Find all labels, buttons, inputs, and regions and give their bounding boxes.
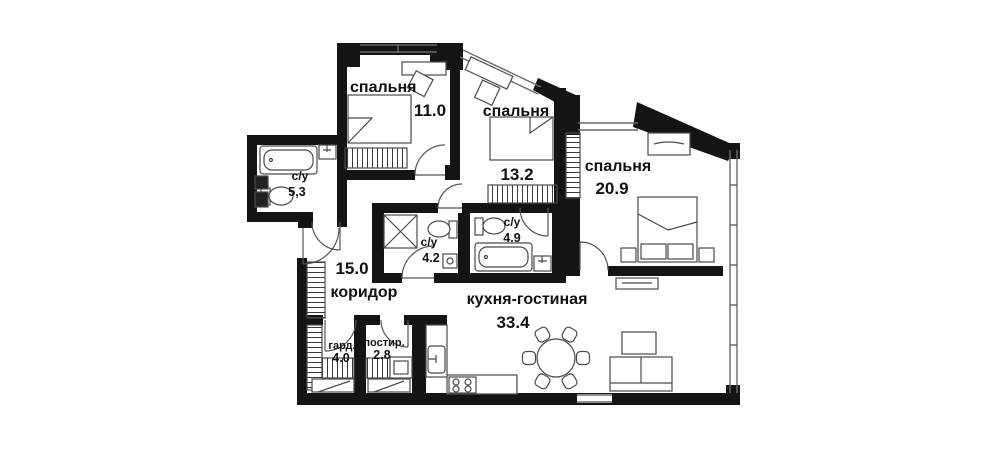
room-area: 2.8 <box>373 348 390 362</box>
room-area: 11.0 <box>414 101 446 120</box>
shaft <box>255 192 268 207</box>
bathtub-bathroom-3 <box>475 243 532 271</box>
room-label: с/у <box>421 235 438 249</box>
room-label: коридор <box>331 284 398 301</box>
washing-machine <box>390 357 412 378</box>
room-area: 15.0 <box>335 259 368 278</box>
wardrobe-strip-corridor <box>307 262 325 318</box>
wardrobe-strip-bedroom-2 <box>488 185 557 203</box>
stove <box>449 377 476 393</box>
coffee-table <box>622 332 656 354</box>
wardrobe-strip-bedroom-3 <box>566 133 580 198</box>
shaft <box>255 176 268 189</box>
room-area: 13.2 <box>500 165 533 184</box>
kitchen-sink <box>428 346 445 373</box>
room-area: 4.0 <box>332 351 349 365</box>
bench-laundry <box>368 379 410 392</box>
room-label: спальня <box>350 79 416 96</box>
bench-wardrobe <box>312 379 354 392</box>
shower-bathroom-2 <box>384 215 417 248</box>
bathtub-bathroom-1 <box>260 146 317 174</box>
room-area: 5,3 <box>288 185 305 199</box>
window-bottom <box>577 394 612 403</box>
room-label: с/у <box>504 215 521 229</box>
room-label: спальня <box>585 158 651 175</box>
toilet-bathroom-3 <box>475 218 505 235</box>
bed-single-bedroom-1 <box>348 95 411 143</box>
bed-single-bedroom-2 <box>490 117 553 160</box>
sink-bathroom-2 <box>443 254 457 268</box>
room-area: 4.2 <box>422 251 439 265</box>
dresser-bedroom-3 <box>648 133 690 155</box>
sink-bathroom-1 <box>319 145 336 159</box>
room-label: с/у <box>292 169 309 183</box>
room-area: 4.9 <box>503 231 520 245</box>
floor-plan-svg: спальня 11.0 спальня 13.2 спальня 20.9 с… <box>0 0 1000 450</box>
room-area: 20.9 <box>595 179 628 198</box>
sofa <box>610 357 672 391</box>
room-area: 33.4 <box>496 313 530 332</box>
sink-bathroom-3 <box>534 256 551 271</box>
tv-console <box>616 278 658 289</box>
room-label: спальня <box>483 103 549 120</box>
wardrobe-strip-bedroom-1 <box>345 148 407 168</box>
floor-plan: спальня 11.0 спальня 13.2 спальня 20.9 с… <box>0 0 1000 450</box>
room-label: кухня-гостиная <box>467 291 588 308</box>
